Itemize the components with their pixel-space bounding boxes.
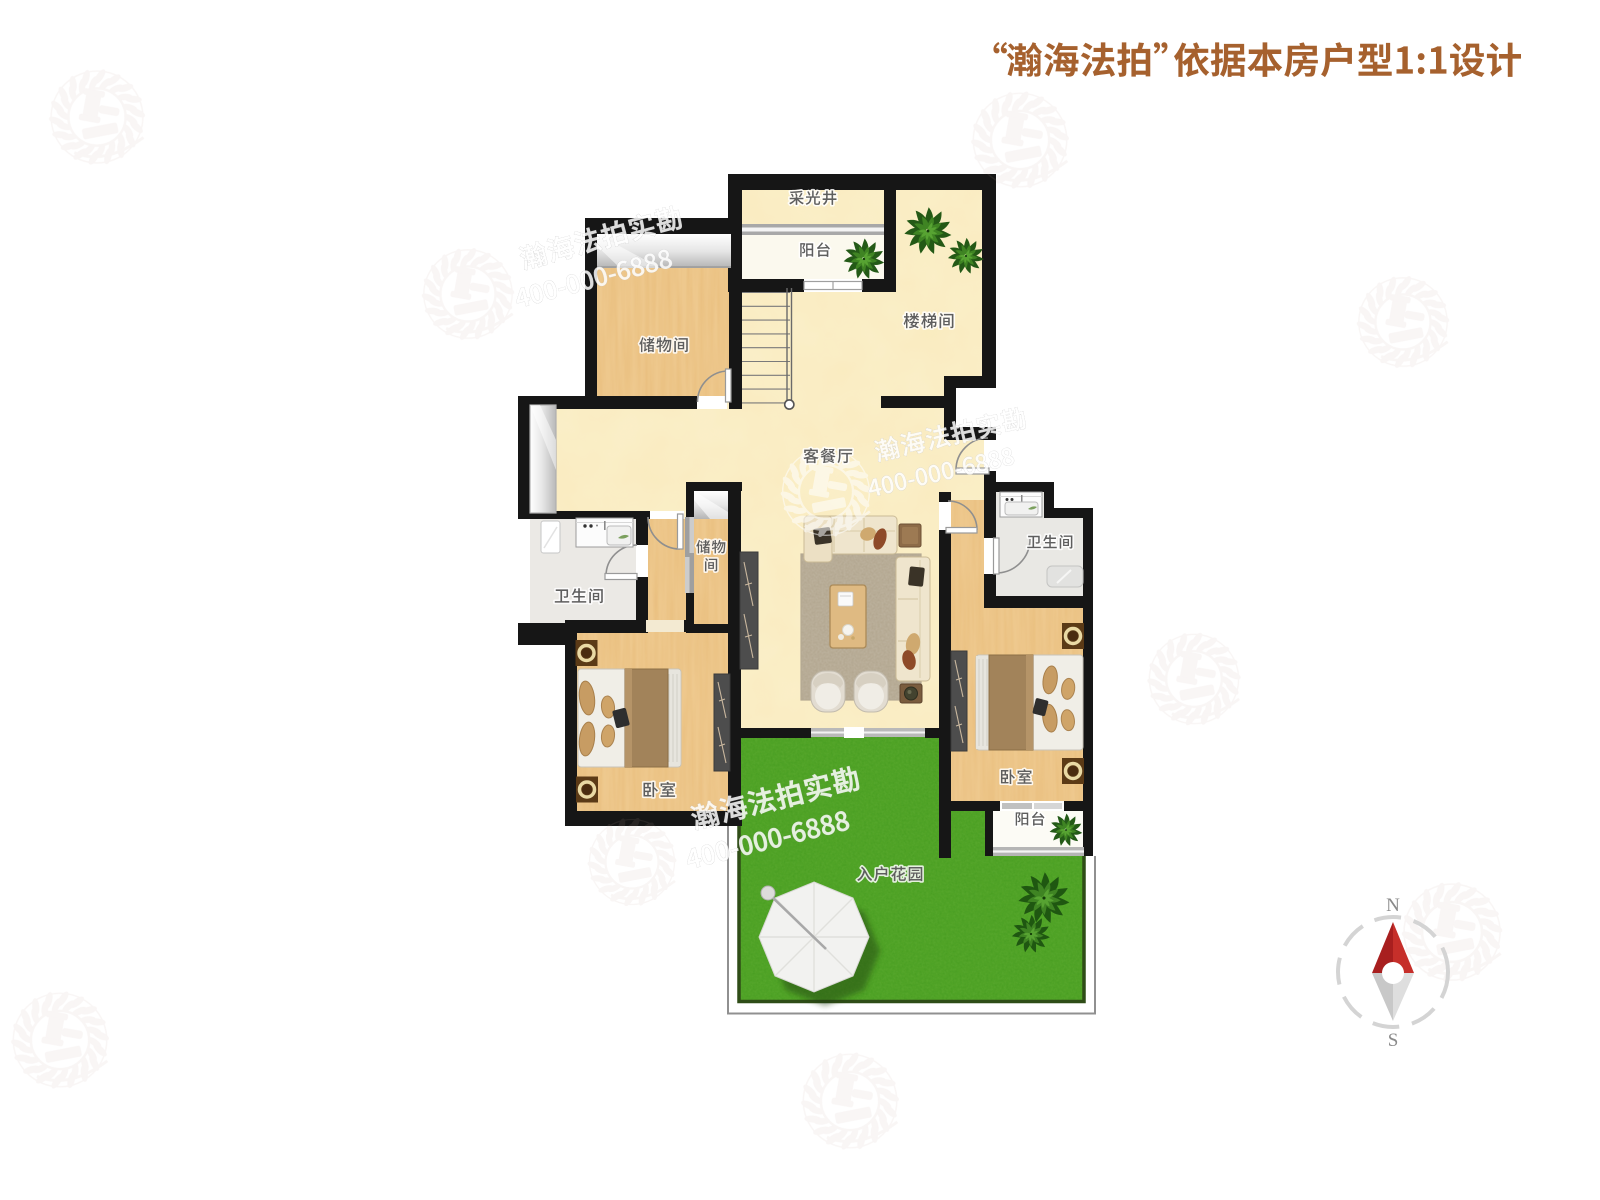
svg-text:S: S — [1388, 1030, 1399, 1051]
svg-text:N: N — [1386, 895, 1400, 916]
